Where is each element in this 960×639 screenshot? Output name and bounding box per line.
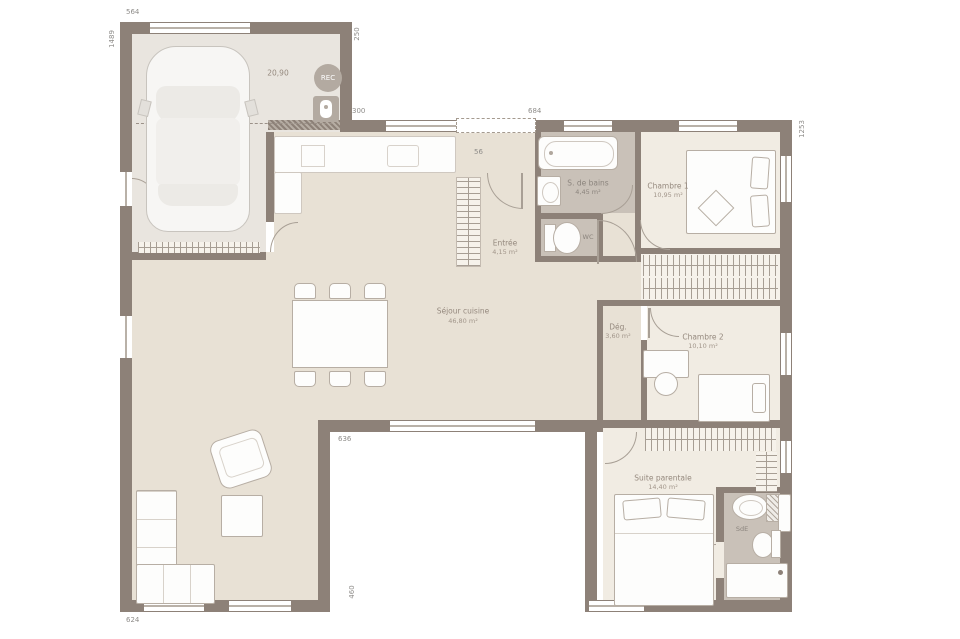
bed-double [614, 494, 714, 606]
room-label-chambre1: Chambre 1 [647, 182, 688, 191]
toilet [752, 528, 780, 558]
kitchen-counter-return [274, 172, 302, 214]
pillow [750, 194, 770, 227]
rec-badge: REC [314, 64, 342, 92]
room-label-entree: Entrée [493, 239, 518, 248]
closet-shelf [643, 255, 778, 276]
room-area-suite: 14,40 m² [648, 483, 678, 491]
room-area-sejour: 46,80 m² [448, 317, 478, 325]
wall [597, 300, 603, 426]
dimension-label: 250 [353, 19, 361, 49]
door-leaf [521, 173, 523, 209]
room-label-suite: Suite parentale [634, 474, 691, 483]
dining-set [291, 283, 389, 387]
dressing-shelf [756, 452, 777, 492]
window [120, 172, 132, 206]
wall [597, 300, 780, 306]
wall [132, 252, 266, 260]
room-area-entree: 4,15 m² [492, 248, 517, 256]
room-area-sdb: 4,45 m² [575, 188, 600, 196]
room-area-chambre1: 10,95 m² [653, 191, 683, 199]
wall [716, 487, 724, 542]
room-label-chambre2: Chambre 2 [682, 333, 723, 342]
washbasin-round [732, 494, 768, 520]
window [679, 121, 737, 131]
chair [329, 371, 351, 387]
dimension-label: 1489 [108, 24, 116, 54]
cabinet [778, 494, 791, 532]
porch-outline [456, 118, 536, 133]
garage-door [150, 23, 250, 33]
chair [364, 371, 386, 387]
rec-badge-label: REC [321, 74, 335, 82]
dressing-shelf [645, 428, 776, 451]
dimension-label: 56 [474, 148, 483, 156]
garage-shelving [138, 242, 260, 253]
boiler-icon [313, 96, 339, 122]
dimension-label: 460 [348, 577, 356, 607]
chair [294, 371, 316, 387]
dimension-label: 564 [126, 8, 139, 16]
wall [635, 132, 641, 262]
pillow [752, 383, 766, 413]
pillow [622, 497, 662, 520]
dimension-label: 1253 [798, 114, 806, 144]
sofa [136, 564, 215, 604]
toilet [544, 220, 580, 254]
wall [716, 578, 724, 600]
entry-cabinet [456, 177, 481, 267]
washbasin [537, 176, 561, 206]
garage-area-label: 20,90 [267, 69, 288, 78]
dimension-label: 684 [528, 107, 541, 115]
car [146, 46, 250, 232]
bed-single [698, 374, 770, 422]
bay-window [390, 421, 535, 431]
window [386, 121, 456, 131]
bed-double [686, 150, 776, 234]
shower-tray [726, 563, 788, 598]
chair [364, 283, 386, 299]
chair [294, 283, 316, 299]
dimension-label: 300 [352, 107, 365, 115]
bathtub [538, 136, 618, 170]
dimension-label: 624 [126, 616, 139, 624]
room-label-sejour: Séjour cuisine [437, 307, 490, 316]
dimension-label: 636 [338, 435, 351, 443]
throw-blanket [698, 190, 735, 227]
room-label-sdb: S. de bains [567, 179, 608, 188]
coffee-table [221, 495, 263, 537]
desk-chair [654, 372, 678, 396]
room-label-deg: Dég. [609, 323, 627, 332]
closet-shelf [643, 278, 778, 299]
wall [318, 420, 330, 612]
room-area-deg: 3,60 m² [605, 332, 630, 340]
wall [585, 432, 597, 600]
chair [329, 283, 351, 299]
wall [541, 213, 603, 219]
pillow [750, 156, 770, 189]
window [120, 316, 132, 358]
window [564, 121, 612, 131]
floor-plan: REC [0, 0, 960, 639]
pillow [666, 497, 706, 520]
kitchen-counter [274, 136, 456, 173]
room-area-chambre2: 10,10 m² [688, 342, 718, 350]
window [781, 441, 791, 473]
dining-table [292, 300, 388, 368]
window [229, 601, 291, 611]
window [781, 333, 791, 375]
wall [266, 132, 274, 222]
window [781, 156, 791, 202]
room-label-sde: SdE [736, 525, 748, 533]
room-label-wc: WC [583, 233, 594, 241]
